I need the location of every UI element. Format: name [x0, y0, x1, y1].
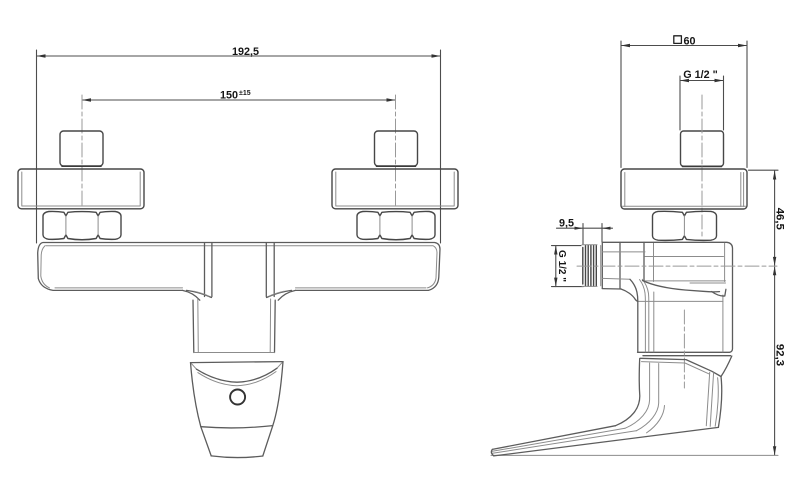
svg-text:92,3: 92,3: [773, 344, 785, 366]
svg-text:G 1/2 ": G 1/2 ": [556, 250, 567, 282]
svg-text:150: 150: [220, 90, 238, 102]
svg-text:192,5: 192,5: [232, 46, 259, 58]
svg-text:46,5: 46,5: [773, 208, 785, 231]
svg-text:60: 60: [684, 35, 696, 47]
svg-text:9,5: 9,5: [559, 217, 574, 229]
svg-text:±15: ±15: [239, 90, 251, 97]
